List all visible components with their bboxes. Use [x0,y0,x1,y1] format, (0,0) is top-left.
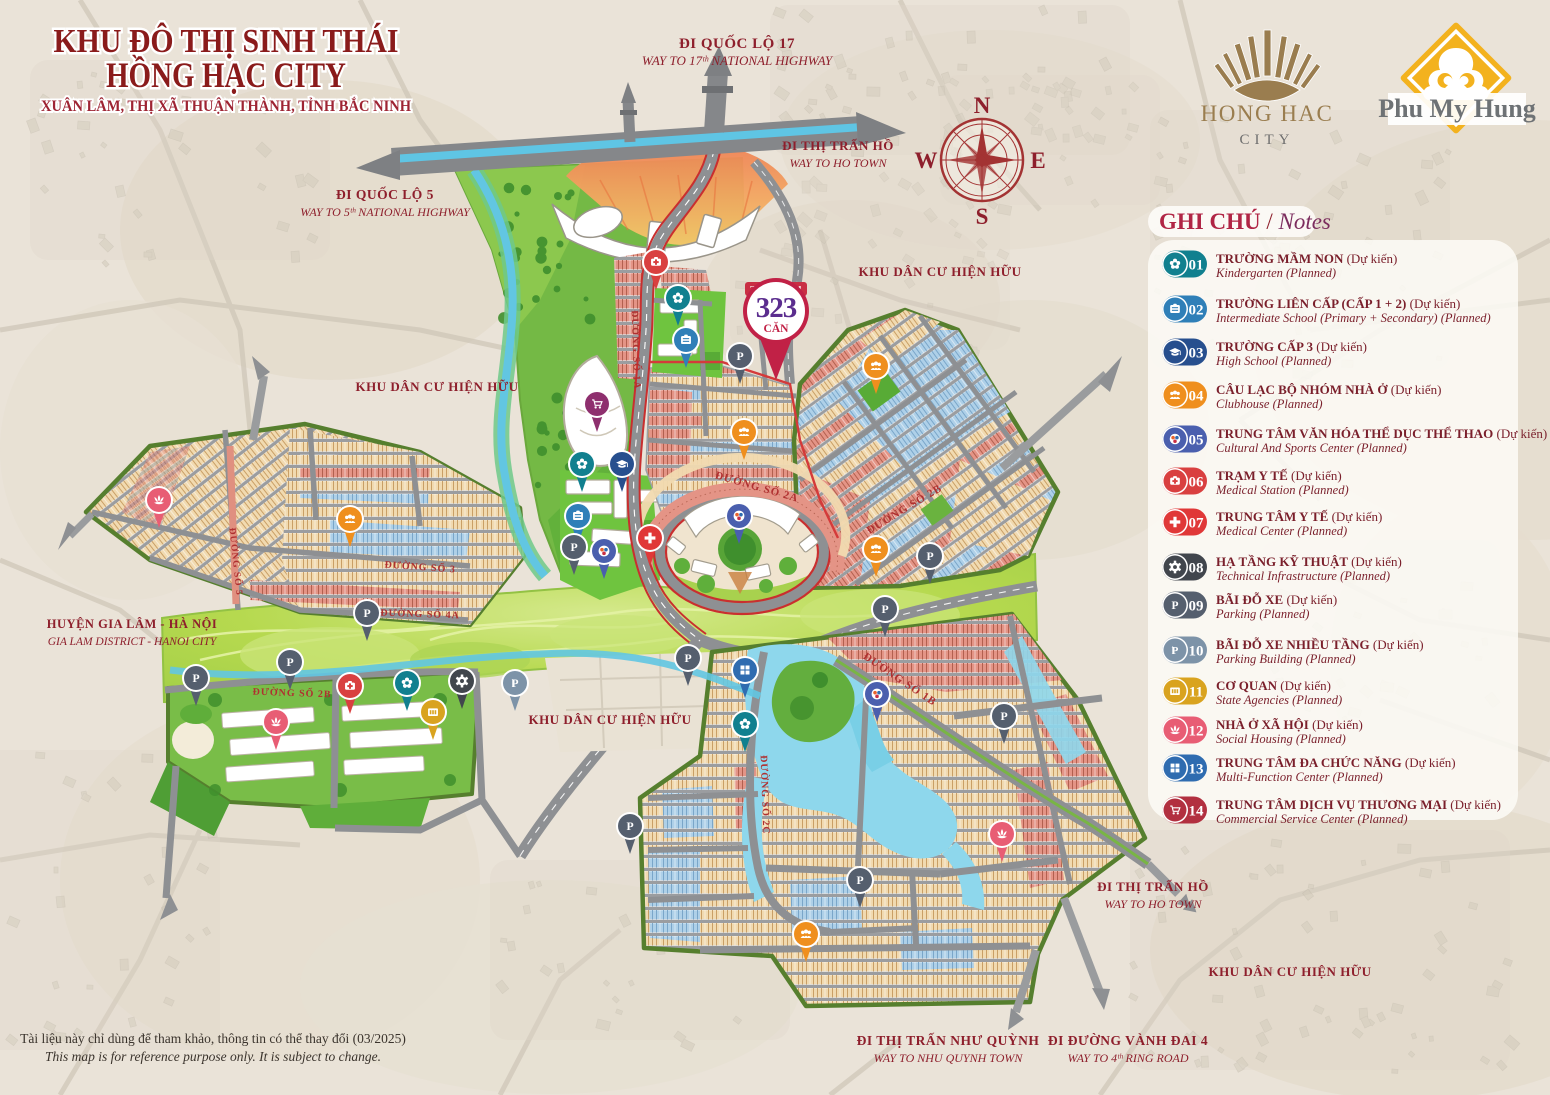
svg-text:P: P [363,607,370,620]
svg-text:NHÀ Ở XÃ HỘI (Dự kiến): NHÀ Ở XÃ HỘI (Dự kiến) [1216,717,1363,732]
svg-text:TRUNG TÂM ĐA CHỨC NĂNG (Dự kiế: TRUNG TÂM ĐA CHỨC NĂNG (Dự kiến) [1216,755,1456,770]
svg-text:P: P [881,603,888,616]
svg-text:W: W [915,148,938,173]
svg-text:WAY TO 5ᵗʰ NATIONAL HIGHWAY: WAY TO 5ᵗʰ NATIONAL HIGHWAY [300,205,471,219]
svg-text:P: P [736,350,743,363]
svg-text:GHI CHÚ / Notes: GHI CHÚ / Notes [1159,209,1331,234]
svg-text:BÃI ĐỖ XE (Dự kiến): BÃI ĐỖ XE (Dự kiến) [1216,592,1337,607]
svg-text:KHU DÂN CƯ HIỆN HỮU: KHU DÂN CƯ HIỆN HỮU [858,264,1021,279]
svg-text:CƠ QUAN (Dự kiến): CƠ QUAN (Dự kiến) [1216,678,1331,693]
svg-text:S: S [976,204,989,229]
svg-text:WAY TO 4ᵗʰ RING ROAD: WAY TO 4ᵗʰ RING ROAD [1067,1051,1188,1065]
svg-text:High School (Planned): High School (Planned) [1215,354,1331,368]
svg-text:Parking (Planned): Parking (Planned) [1215,607,1309,621]
svg-text:CĂN: CĂN [764,321,790,335]
svg-text:WAY TO HO TOWN: WAY TO HO TOWN [1104,897,1202,911]
svg-text:CITY: CITY [1240,132,1295,148]
svg-text:TRUNG TÂM DỊCH VỤ THƯƠNG MẠI (: TRUNG TÂM DỊCH VỤ THƯƠNG MẠI (Dự kiến) [1216,797,1501,812]
svg-text:02: 02 [1189,303,1204,319]
svg-text:TRUNG TÂM VĂN HÓA THỂ DỤC THỂ: TRUNG TÂM VĂN HÓA THỂ DỤC THỂ THAO (Dự k… [1216,426,1547,441]
svg-text:Medical Center (Planned): Medical Center (Planned) [1215,524,1347,538]
svg-text:13: 13 [1189,762,1204,778]
svg-text:Intermediate School (Primary +: Intermediate School (Primary + Secondary… [1215,311,1491,325]
svg-text:XUÂN LÂM, THỊ XÃ THUẬN THÀNH,: XUÂN LÂM, THỊ XÃ THUẬN THÀNH, TỈNH BẮC N… [41,97,411,115]
svg-text:Social Housing (Planned): Social Housing (Planned) [1216,732,1346,746]
svg-text:P: P [684,652,691,665]
svg-text:P: P [926,550,933,563]
svg-text:12: 12 [1189,724,1204,740]
svg-text:GIA LAM DISTRICT - HANOI CITY: GIA LAM DISTRICT - HANOI CITY [48,636,218,648]
svg-text:WAY TO HO TOWN: WAY TO HO TOWN [789,156,887,170]
svg-text:TRƯỜNG LIÊN CẤP (CẤP 1 + 2) (D: TRƯỜNG LIÊN CẤP (CẤP 1 + 2) (Dự kiến) [1216,296,1460,311]
svg-text:State Agencies (Planned): State Agencies (Planned) [1216,693,1342,707]
svg-text:ĐI THỊ TRẤN HỒ: ĐI THỊ TRẤN HỒ [1097,879,1209,894]
svg-text:TRƯỜNG CẤP 3 (Dự kiến): TRƯỜNG CẤP 3 (Dự kiến) [1216,339,1367,354]
svg-text:11: 11 [1189,685,1203,701]
svg-text:Kindergarten (Planned): Kindergarten (Planned) [1215,266,1336,280]
svg-text:04: 04 [1189,389,1205,405]
svg-text:N: N [974,93,991,118]
svg-text:P: P [856,874,863,887]
svg-text:P: P [626,820,633,833]
svg-text:ĐI THỊ TRẤN NHƯ QUỲNH: ĐI THỊ TRẤN NHƯ QUỲNH [857,1033,1040,1048]
svg-text:KHU DÂN CƯ HIỆN HỮU: KHU DÂN CƯ HIỆN HỮU [1208,964,1371,979]
svg-text:E: E [1030,148,1045,173]
svg-text:Technical Infrastructure (Plan: Technical Infrastructure (Planned) [1216,569,1390,583]
svg-text:Clubhouse (Planned): Clubhouse (Planned) [1216,397,1323,411]
svg-text:HONG HAC: HONG HAC [1201,101,1334,126]
svg-text:08: 08 [1189,561,1204,577]
svg-text:Medical Station (Planned): Medical Station (Planned) [1215,483,1349,497]
svg-text:HẠ TẦNG KỸ THUẬT (Dự kiến): HẠ TẦNG KỸ THUẬT (Dự kiến) [1216,554,1402,569]
svg-text:KHU DÂN CƯ HIỆN HỮU: KHU DÂN CƯ HIỆN HỮU [528,712,691,727]
svg-text:323: 323 [756,292,797,324]
svg-text:HUYỆN GIA LÂM - HÀ NỘI: HUYỆN GIA LÂM - HÀ NỘI [47,617,217,631]
svg-text:05: 05 [1189,433,1204,449]
svg-text:HỒNG HẠC CITY: HỒNG HẠC CITY [106,54,346,95]
svg-text:TRƯỜNG MẦM NON (Dự kiến): TRƯỜNG MẦM NON (Dự kiến) [1216,251,1397,266]
svg-text:Cultural And Sports Center (Pl: Cultural And Sports Center (Planned) [1216,441,1407,455]
svg-text:CÂU LẠC BỘ NHÓM NHÀ Ở (Dự kiến: CÂU LẠC BỘ NHÓM NHÀ Ở (Dự kiến) [1216,382,1442,397]
svg-text:Tài liệu này chỉ dùng để tham: Tài liệu này chỉ dùng để tham khảo, thôn… [20,1031,406,1046]
svg-text:Phu My Hung: Phu My Hung [1378,94,1536,123]
svg-text:03: 03 [1189,346,1204,362]
svg-text:P: P [1000,710,1007,723]
svg-text:ĐI QUỐC LỘ 17: ĐI QUỐC LỘ 17 [679,34,795,52]
svg-text:KHU DÂN CƯ HIỆN HỮU: KHU DÂN CƯ HIỆN HỮU [355,379,518,394]
svg-text:TRUNG TÂM Y TẾ (Dự kiến): TRUNG TÂM Y TẾ (Dự kiến) [1216,509,1382,524]
svg-text:WAY TO NHU QUYNH TOWN: WAY TO NHU QUYNH TOWN [874,1051,1024,1065]
svg-text:P: P [1172,600,1179,612]
svg-text:01: 01 [1189,258,1204,274]
svg-text:ĐI QUỐC LỘ 5: ĐI QUỐC LỘ 5 [336,187,434,202]
svg-text:ĐI THỊ TRẤN HỒ: ĐI THỊ TRẤN HỒ [782,138,894,153]
svg-text:Commercial Service Center (Pla: Commercial Service Center (Planned) [1216,812,1408,826]
svg-text:09: 09 [1189,599,1204,615]
svg-text:07: 07 [1189,516,1205,532]
svg-text:BÃI ĐỖ XE NHIỀU TẦNG (Dự kiến): BÃI ĐỖ XE NHIỀU TẦNG (Dự kiến) [1216,637,1424,652]
svg-text:P: P [286,656,293,669]
svg-text:Multi-Function Center (Planned: Multi-Function Center (Planned) [1215,770,1383,784]
svg-text:ĐI ĐƯỜNG VÀNH ĐAI 4: ĐI ĐƯỜNG VÀNH ĐAI 4 [1048,1033,1208,1048]
svg-text:06: 06 [1189,475,1205,491]
svg-text:10: 10 [1189,644,1204,660]
svg-text:P: P [570,541,577,554]
svg-text:This map is for reference purp: This map is for reference purpose only. … [45,1049,381,1064]
svg-text:14: 14 [1189,804,1205,820]
svg-text:TRẠM Y TẾ (Dự kiến): TRẠM Y TẾ (Dự kiến) [1216,468,1342,483]
svg-text:P: P [192,672,199,685]
svg-text:Parking Building (Planned): Parking Building (Planned) [1215,652,1356,666]
svg-text:WAY TO 17ᵗʰ NATIONAL HIGHWAY: WAY TO 17ᵗʰ NATIONAL HIGHWAY [642,53,834,68]
